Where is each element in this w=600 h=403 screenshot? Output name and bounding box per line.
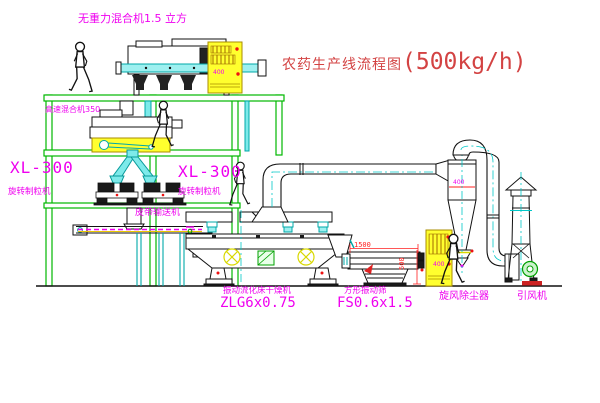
belt-conveyor — [73, 225, 203, 286]
diagram-title: 农药生产线流程图(500kg/h) — [282, 49, 527, 75]
worker-top-floor — [69, 42, 92, 91]
label-belt-conveyor: 皮带输送机 — [135, 209, 180, 218]
gravity-free-mixer — [116, 39, 266, 95]
label-high-speed-mixer: 高速混合机350 — [45, 106, 100, 114]
label-granulator-mid-name: 旋转制粒机 — [178, 188, 221, 197]
induced-draft-fan — [505, 172, 542, 286]
label-dryer-model: ZLG6x0.75 — [220, 296, 296, 310]
cyan-downpipe — [145, 101, 151, 117]
tag-cabinet-right: 400 — [433, 262, 444, 268]
duct-centerline — [272, 172, 442, 207]
title-capacity: (500kg/h) — [402, 49, 527, 75]
title-text: 农药生产线流程图 — [282, 57, 402, 73]
flow-diagram-canvas: 农药生产线流程图(500kg/h) 无重力混合机1.5 立方 高速混合机350 … — [0, 0, 600, 403]
exhaust-duct — [252, 163, 442, 222]
tag-cabinet-top: 400 — [213, 70, 224, 76]
label-granulator-left-name: 旋转制粒机 — [8, 188, 51, 197]
label-fan: 引风机 — [517, 292, 547, 302]
label-granulator-left-model: XL-300 — [10, 160, 74, 176]
dim-screen-height: 500 — [398, 257, 406, 270]
rotary-granulators — [94, 183, 186, 205]
dryer-top-fittings — [207, 222, 328, 232]
square-vibrating-screen — [328, 235, 424, 286]
conveyor-legs — [137, 233, 184, 286]
control-cabinet-top — [208, 42, 242, 93]
dryer-feet — [204, 268, 338, 286]
label-cyclone: 旋风除尘器 — [439, 292, 489, 302]
dim-screen-length: 1500 — [354, 241, 371, 249]
label-granulator-mid-model: XL-300 — [178, 164, 242, 180]
dryer-motor — [258, 251, 274, 265]
label-screen-model: FS0.6x1.5 — [337, 296, 413, 310]
fluid-bed-dryer — [186, 212, 344, 286]
floor-beam-top — [44, 95, 284, 101]
tag-cyclone: 400 — [453, 180, 464, 186]
cyan-downpipe-right — [245, 101, 249, 151]
fan-base — [522, 281, 542, 286]
column-right-stub — [276, 95, 282, 155]
label-gravity-free-mixer: 无重力混合机1.5 立方 — [78, 13, 187, 24]
